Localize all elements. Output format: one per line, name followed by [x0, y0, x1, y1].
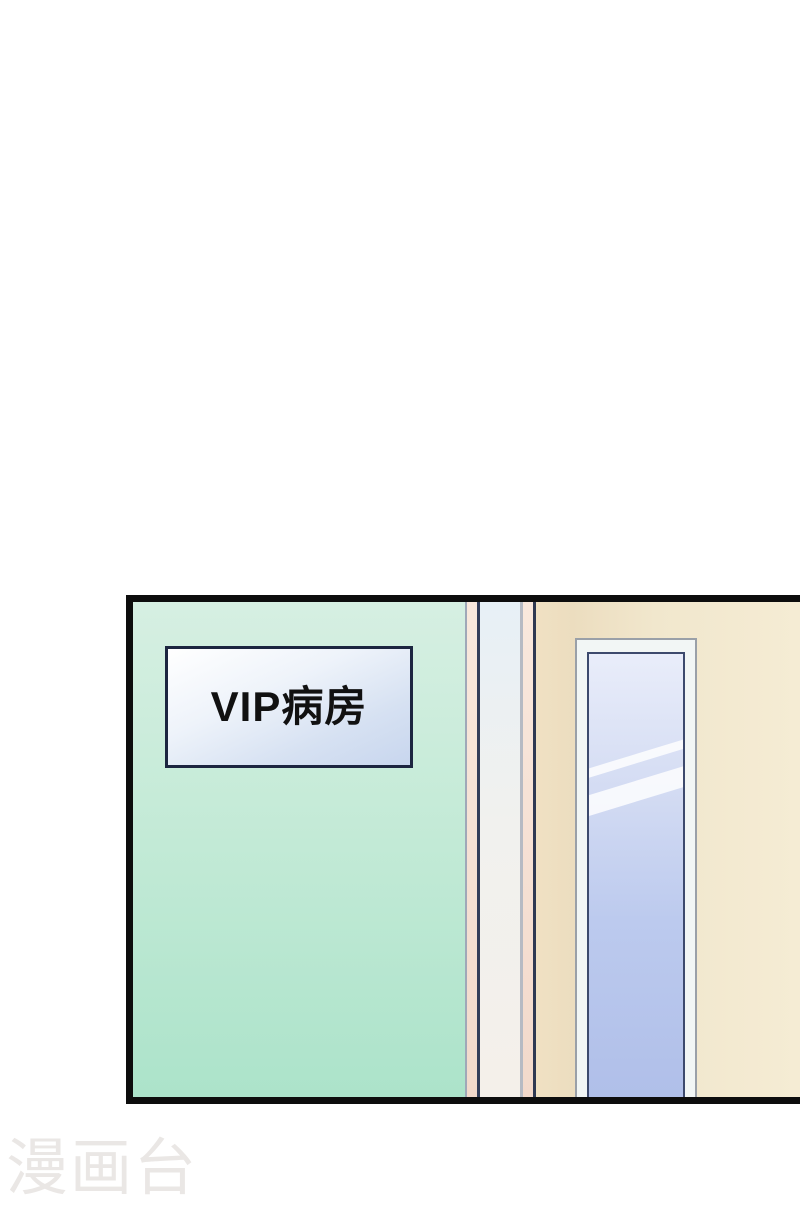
vip-ward-sign-label: VIP病房 — [211, 686, 368, 728]
watermark: 漫画台 — [6, 1138, 198, 1200]
door-frame-strip-right — [523, 602, 533, 1097]
door-window-frame — [575, 638, 697, 1097]
hospital-wall: VIP病房 — [133, 602, 465, 1097]
panel-interior: VIP病房 — [133, 602, 800, 1097]
hospital-door — [536, 602, 800, 1097]
comic-panel: VIP病房 — [126, 595, 800, 1104]
door-frame-jamb — [480, 602, 520, 1097]
vip-ward-sign: VIP病房 — [165, 646, 413, 768]
door-frame-strip-left — [467, 602, 477, 1097]
page-background: VIP病房 漫画台 — [0, 0, 800, 1208]
door-window-glass — [587, 652, 685, 1097]
